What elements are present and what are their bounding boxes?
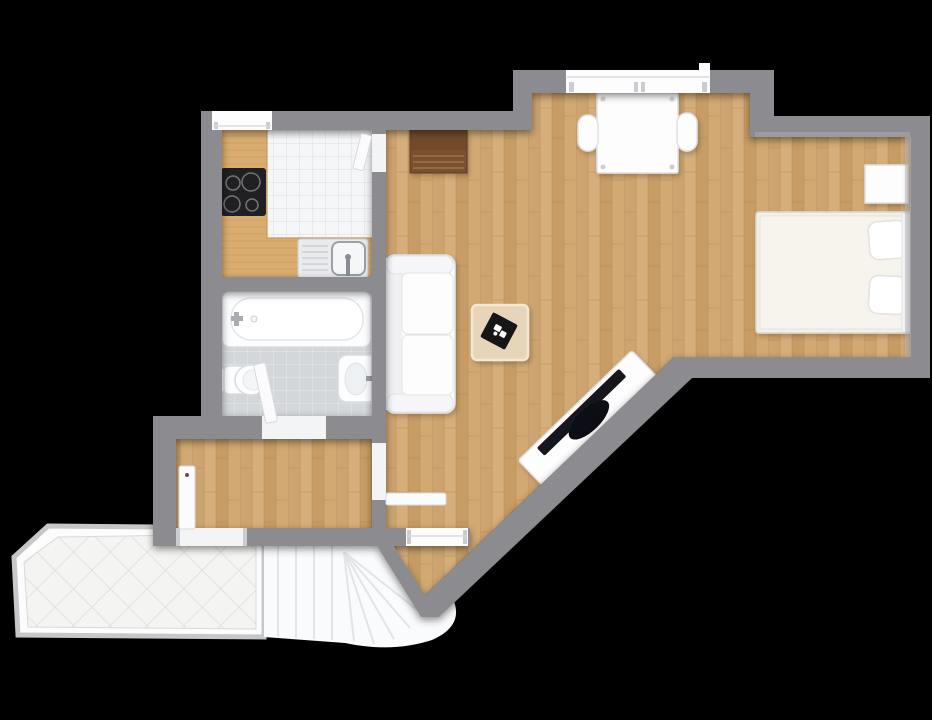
wall-bedroom-top-inner-face [755, 132, 910, 137]
double-bed [756, 212, 912, 333]
terrace-tiles [24, 534, 256, 629]
entrance-doorway [176, 528, 247, 546]
wall-left [201, 111, 222, 439]
wall-right [910, 116, 930, 378]
dining-chair-left [578, 115, 598, 151]
door-handle-icon [185, 473, 189, 477]
wall-dining-right [750, 70, 774, 117]
sideboard [410, 130, 467, 173]
kitchen-sink [298, 239, 368, 278]
dining-table [597, 93, 678, 173]
window-vent-tab [699, 63, 710, 73]
kitchen-doorway [372, 134, 386, 172]
floor-plan-stage [0, 0, 932, 720]
dining-chair-right [677, 113, 697, 151]
kitchen-window [212, 111, 272, 130]
hall-doorway [372, 443, 386, 500]
floor-plan-canvas [0, 0, 932, 720]
hallway-floor [176, 439, 372, 528]
cooktop [221, 168, 266, 216]
kitchen-floor [267, 130, 372, 238]
bathtub [222, 291, 371, 347]
sofa [385, 255, 455, 413]
hall-door-open [386, 493, 446, 505]
nightstand [865, 165, 908, 203]
wash-basin [338, 355, 374, 402]
coffee-table [472, 305, 528, 360]
tub-drain-icon [251, 316, 257, 322]
wall-kitchen-bath [201, 277, 386, 291]
wall-right-inner-face [905, 137, 911, 357]
stair-side-window [406, 528, 468, 546]
wall-hall-left [153, 425, 176, 546]
entrance-door [179, 466, 195, 529]
wall-bedroom-bottom [674, 357, 930, 378]
sink-faucet-icon [346, 258, 350, 276]
